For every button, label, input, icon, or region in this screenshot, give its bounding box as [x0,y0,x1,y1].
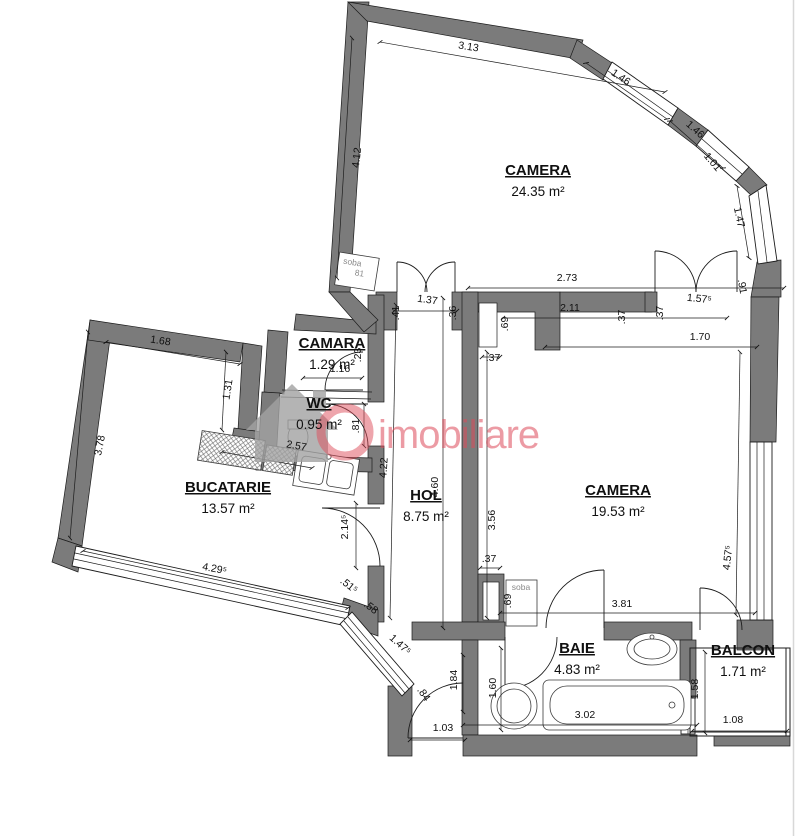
dimension-label: 1.37 [416,293,438,308]
dimension-label: 1.58 [689,679,701,700]
bathroom-sink-basin [634,639,670,659]
room-area-5: 19.53 m² [591,504,645,519]
dimension-label: .37 [616,310,628,325]
dimension-label: 1.57⁵ [686,292,712,307]
dimension-label: 3.81 [612,598,633,610]
dimension-label: 3.02 [575,709,596,721]
dimension-label: .91 [735,278,749,295]
room-area-2: 0.95 m² [296,417,342,432]
dimension-label: 1.03 [433,722,454,734]
room-area-6: 4.83 m² [554,662,600,677]
wall-niche [483,582,499,620]
dimension-label: .51⁵ [338,575,360,596]
room-label-7: BALCON [711,642,775,659]
floor-plan-canvas: imobiliare CAMERA24.35 m²CAMARA1.29 m²WC… [0,0,800,836]
room-label-0: CAMERA [505,162,571,179]
dimension-label: 4.60 [429,477,441,498]
watermark-text: imobiliare [378,413,539,457]
dimension-label: 4.12 [350,147,364,169]
floor-plan-image: imobiliare CAMERA24.35 m²CAMARA1.29 m²WC… [0,0,800,836]
wall-niche [479,303,497,347]
dimension-label: .23 [352,348,364,363]
bathroom-faucet [650,635,654,639]
dimension-label: 1.47⁵ [387,632,413,658]
dimension-label: 2.14⁵ [339,515,351,540]
dimension-label: .36 [447,306,459,321]
dimension-label: .37 [482,553,497,565]
dimension-label: 1.31 [221,378,236,400]
dimension-label: 3.78 [92,434,108,457]
bathtub-inner [550,686,684,724]
dimension-label: 1.08 [723,714,744,726]
room-label-5: CAMERA [585,482,651,499]
bathtub-drain [669,702,675,708]
dimension-label: .69 [499,317,511,332]
dimension-label: .81 [350,419,362,434]
walls [52,2,790,756]
room-label-2: WC [307,395,332,412]
dimension-label: 1.47 [731,206,747,229]
dimension-label: .41 [390,306,402,321]
dimension-label: 1.70 [690,331,711,343]
dimension-label: 4.57⁵ [721,545,736,571]
room-area-7: 1.71 m² [720,664,766,679]
dimension-label: 1.84 [448,670,460,691]
dimension-label: 3.13 [457,40,479,55]
room-label-3: BUCATARIE [185,479,271,496]
dimension-label: 1.16 [330,363,351,375]
dimension-label: 3.56 [486,510,498,531]
dimension-label: .69 [502,594,514,609]
dimension-label: .84 [414,685,432,704]
room-area-4: 8.75 m² [403,509,449,524]
kitchen-sink-basin [326,460,354,489]
dimension-label: .37 [654,306,666,321]
room-area-3: 13.57 m² [201,501,255,516]
dimension-label: 4.22 [377,457,390,478]
dimension-label: 1.60 [487,678,499,699]
fixture-label: 81 [354,267,365,278]
dimension-label: 2.11 [560,302,580,314]
room-area-0: 24.35 m² [511,184,565,199]
dimension-label: .37 [486,352,501,364]
room-label-6: BAIE [559,640,595,657]
dimension-label: 2.73 [557,272,578,284]
fixture-label: soba [512,582,531,592]
washing-machine-inner [497,689,531,723]
